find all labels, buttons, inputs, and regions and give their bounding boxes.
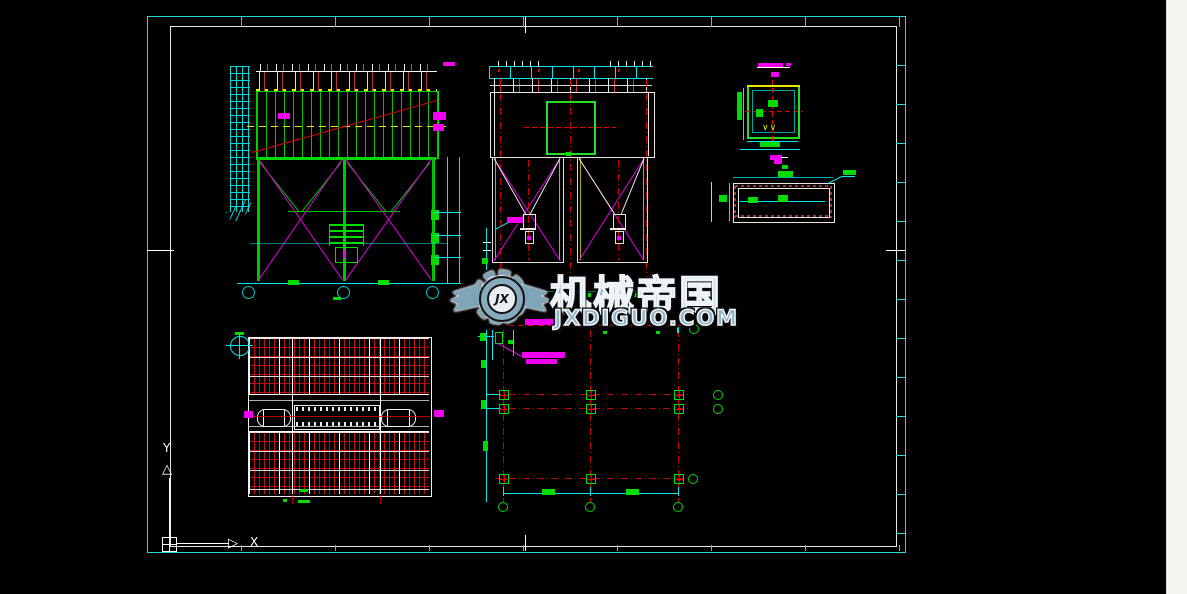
anchor-plate bbox=[674, 404, 684, 414]
bay-edge-yellow bbox=[559, 158, 560, 260]
logo-monogram: JX bbox=[495, 292, 509, 306]
sub-label-tick bbox=[781, 157, 788, 158]
axis-bubble bbox=[688, 474, 698, 484]
section-marker-circle bbox=[230, 336, 250, 356]
dim-text-magenta bbox=[433, 124, 444, 131]
dim-text-green bbox=[542, 489, 555, 495]
dim-tick bbox=[590, 487, 591, 496]
ucs-y-label: Y bbox=[163, 441, 170, 455]
frame-ticks-top bbox=[148, 17, 904, 27]
rect-inner bbox=[738, 188, 830, 218]
dim-text-green bbox=[778, 171, 793, 177]
watermark: JX 机械帝国 JXDIGUO.COM bbox=[448, 254, 738, 336]
axis-bubble bbox=[713, 404, 723, 414]
bay-edge-yellow bbox=[495, 158, 496, 260]
dim-text-green bbox=[626, 489, 639, 495]
support-leg bbox=[257, 157, 260, 281]
discharge-flange bbox=[520, 228, 536, 230]
bay-edge-yellow bbox=[580, 158, 581, 260]
bag-grid-upper bbox=[249, 338, 429, 394]
ucs-x-arrow-icon: ▷ bbox=[228, 536, 238, 551]
note-text bbox=[283, 499, 287, 502]
dim-text-green bbox=[760, 142, 780, 147]
dim-tick bbox=[678, 487, 679, 496]
dim-tick bbox=[435, 235, 461, 236]
center-mark-right bbox=[886, 250, 905, 251]
title-underline bbox=[757, 67, 790, 68]
ucs-y-arrow-icon: △ bbox=[162, 462, 172, 477]
bottom-dimension bbox=[503, 493, 679, 494]
dim-tick bbox=[483, 250, 491, 251]
dim-text-green bbox=[756, 109, 763, 117]
dim-text-magenta bbox=[443, 62, 455, 66]
note-text bbox=[300, 489, 308, 492]
anchor-plate bbox=[586, 474, 596, 484]
discharge-spout bbox=[523, 214, 536, 229]
bolt-row-right bbox=[830, 186, 832, 218]
leader-line-h bbox=[841, 176, 855, 177]
dim-text-green bbox=[288, 280, 299, 285]
anchor-plate bbox=[499, 474, 509, 484]
bay-edge-yellow bbox=[643, 158, 644, 260]
manifold-hatch bbox=[296, 407, 376, 411]
anchor-plate bbox=[499, 390, 509, 400]
center-mark-top bbox=[525, 17, 526, 33]
roof-ticks bbox=[498, 61, 540, 67]
dim-text-green bbox=[719, 195, 727, 202]
dim-text-green bbox=[778, 195, 788, 202]
frame-ticks-right bbox=[896, 27, 905, 545]
dim-line bbox=[743, 88, 744, 140]
door-tick bbox=[566, 152, 571, 156]
rotary-valve-stack bbox=[329, 224, 364, 246]
leader-text bbox=[333, 297, 341, 300]
discharge-spout bbox=[613, 214, 626, 229]
valve-mark bbox=[617, 236, 621, 240]
valve-arrow-mark bbox=[343, 250, 346, 258]
section-text bbox=[508, 340, 513, 344]
access-ladder bbox=[230, 66, 250, 212]
dim-tick bbox=[503, 487, 504, 496]
marker-text bbox=[235, 332, 244, 335]
dim-tick bbox=[483, 242, 491, 243]
dim-line bbox=[729, 183, 730, 221]
pulse-valve-row-top bbox=[260, 64, 432, 71]
title-mark bbox=[786, 63, 791, 66]
dim-tick bbox=[486, 408, 500, 409]
anchor-plate bbox=[586, 390, 596, 400]
dim-text-green bbox=[768, 100, 778, 107]
top-dimension bbox=[733, 177, 833, 178]
dim-text-magenta bbox=[278, 113, 290, 119]
dim-text-green bbox=[483, 441, 488, 451]
sub-label-green bbox=[782, 165, 788, 169]
watermark-domain: JXDIGUO.COM bbox=[554, 306, 739, 330]
sub-label bbox=[774, 160, 782, 164]
centerline-h bbox=[737, 111, 803, 112]
hopper-centerline bbox=[618, 160, 619, 260]
ucs-x-axis-line bbox=[176, 543, 229, 544]
bolt-row-bottom bbox=[735, 215, 831, 217]
axis-bubble bbox=[242, 286, 255, 299]
bag-grid-lower bbox=[249, 432, 429, 494]
manifold-hatch bbox=[296, 422, 376, 426]
anchor-plate bbox=[586, 404, 596, 414]
dim-text-green-vertical bbox=[737, 92, 742, 120]
leader-label bbox=[507, 217, 523, 223]
frame-ticks-bottom bbox=[148, 545, 904, 551]
dim-text-green bbox=[378, 280, 389, 285]
dim-line-left bbox=[486, 330, 487, 502]
axis-bubble bbox=[498, 502, 508, 512]
subtitle-mark bbox=[771, 72, 779, 77]
axis-bubble bbox=[426, 286, 439, 299]
dim-text-green bbox=[748, 197, 758, 203]
ucs-origin-box bbox=[162, 537, 177, 552]
anchor-plate bbox=[674, 390, 684, 400]
housing-inner-line bbox=[494, 92, 495, 156]
axis-bubble bbox=[713, 390, 723, 400]
watermark-logo: JX bbox=[448, 254, 556, 336]
band-line bbox=[490, 85, 652, 86]
plan-centerline bbox=[250, 416, 430, 417]
gear-core: JX bbox=[487, 284, 517, 314]
ucs-x-label: X bbox=[250, 535, 258, 549]
valve-mark bbox=[527, 236, 531, 240]
center-mark-bottom bbox=[525, 535, 526, 551]
axis-bubble bbox=[585, 502, 595, 512]
extension-line bbox=[711, 182, 712, 222]
band-line bbox=[249, 400, 429, 401]
anchor-plate bbox=[674, 474, 684, 484]
dim-line bbox=[740, 149, 800, 150]
housing-inner-line bbox=[648, 92, 649, 156]
edge-mark-left bbox=[244, 411, 253, 418]
dim-text-magenta bbox=[433, 112, 446, 120]
axis-bubble bbox=[673, 502, 683, 512]
leader-text bbox=[843, 170, 856, 175]
weld-symbol: ∨∨ bbox=[762, 123, 777, 133]
view-title bbox=[522, 352, 565, 358]
bottom-dimension-line bbox=[237, 283, 461, 284]
bolt-row-top bbox=[735, 185, 831, 187]
roof-ticks bbox=[610, 61, 652, 67]
cad-viewport[interactable]: △ Y ▷ X bbox=[0, 0, 1166, 594]
hopper-centerline bbox=[528, 160, 529, 260]
center-mark-left bbox=[147, 250, 174, 251]
access-door bbox=[546, 101, 596, 155]
band-line bbox=[249, 394, 429, 395]
scrollbar-vertical[interactable]: ▲ ▼ bbox=[1166, 0, 1187, 594]
roof-rail-red-marks bbox=[489, 69, 653, 72]
note-text bbox=[298, 500, 310, 503]
discharge-flange bbox=[610, 228, 626, 230]
centerline-stub bbox=[292, 495, 293, 504]
dim-tick bbox=[435, 212, 461, 213]
dim-text-green bbox=[481, 360, 486, 368]
section-marker-v bbox=[239, 332, 240, 359]
ucs-y-axis-line bbox=[169, 478, 170, 538]
manifold-cylinder-left bbox=[257, 409, 291, 427]
band-line bbox=[249, 431, 429, 432]
dim-text-green bbox=[481, 400, 486, 409]
manifold-cylinder-right bbox=[381, 409, 416, 427]
rotary-valve-body bbox=[335, 247, 358, 263]
centerline-stub bbox=[380, 495, 381, 504]
bolt-row-left bbox=[734, 186, 736, 218]
edge-mark-right bbox=[434, 410, 444, 417]
anchor-plate bbox=[499, 404, 509, 414]
view-subtitle bbox=[526, 359, 557, 364]
flange-top-yellow bbox=[747, 85, 800, 87]
dim-tick bbox=[486, 394, 500, 395]
